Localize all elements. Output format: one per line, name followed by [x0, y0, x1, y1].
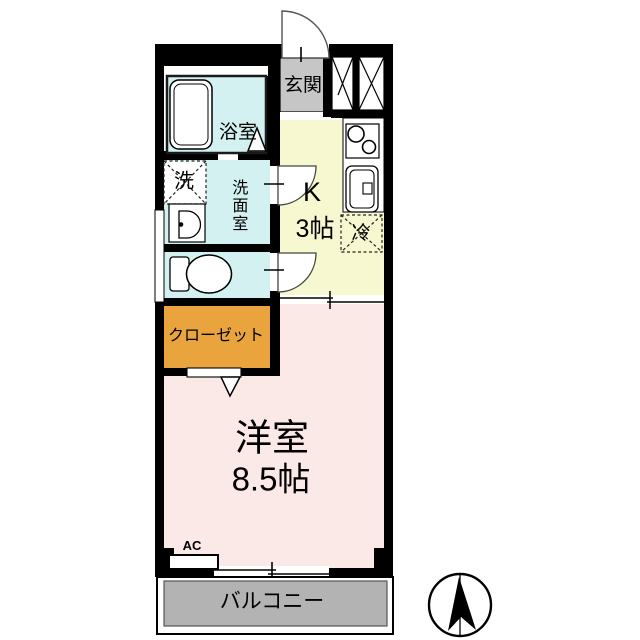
- toilet: [170, 255, 232, 293]
- laundry-label: 洗: [174, 172, 194, 193]
- ac-unit-icon: [169, 555, 218, 569]
- compass: [429, 574, 491, 636]
- main-room-size-label: 8.5帖: [232, 463, 311, 498]
- side-window: [155, 210, 164, 302]
- wall-top-left-block: [155, 44, 268, 66]
- pillar-bottom-right: [374, 548, 393, 577]
- wall-under-storage: [331, 110, 393, 118]
- kitchen-size-label: 3帖: [296, 216, 335, 242]
- bathroom-top-gap: [168, 66, 268, 76]
- balcony-label: バルコニー: [220, 591, 325, 613]
- main-room-type-label: 洋室: [235, 420, 309, 459]
- closet-opening: [187, 368, 241, 377]
- washroom-label: 洗面室: [229, 179, 246, 233]
- genkan-label: 玄関: [284, 76, 322, 96]
- floorplan-canvas: 玄関 浴室 洗 洗面室 K 3帖 冷 クローゼット 洋室 8.5帖 AC バルコ…: [0, 0, 640, 640]
- kitchen-counter: [343, 118, 384, 212]
- bathroom-label: 浴室: [219, 123, 257, 143]
- entrance-door: [282, 11, 329, 62]
- wall-washroom-toilet: [164, 244, 270, 252]
- kitchen-faucet-icon: [363, 183, 372, 194]
- kitchen-type-label: K: [303, 178, 321, 206]
- wall-toilet-closet: [155, 298, 280, 306]
- entrance-door-arc-icon: [282, 11, 329, 58]
- fridge-label: 冷: [351, 224, 370, 244]
- closet-label: クローゼット: [168, 329, 264, 346]
- toilet-bowl-icon: [187, 255, 232, 293]
- stove-burner-large-icon: [348, 126, 364, 142]
- bathtub-icon: [170, 80, 212, 149]
- ac-label: AC: [183, 539, 202, 553]
- wall-storage-divider: [353, 57, 359, 110]
- stove-burner-small-icon: [363, 141, 376, 154]
- washbasin: [169, 204, 205, 242]
- wall-bathroom-right: [266, 44, 280, 160]
- wall-right: [384, 44, 393, 577]
- wall-left: [155, 44, 164, 577]
- washbasin-faucet-icon: [179, 222, 184, 227]
